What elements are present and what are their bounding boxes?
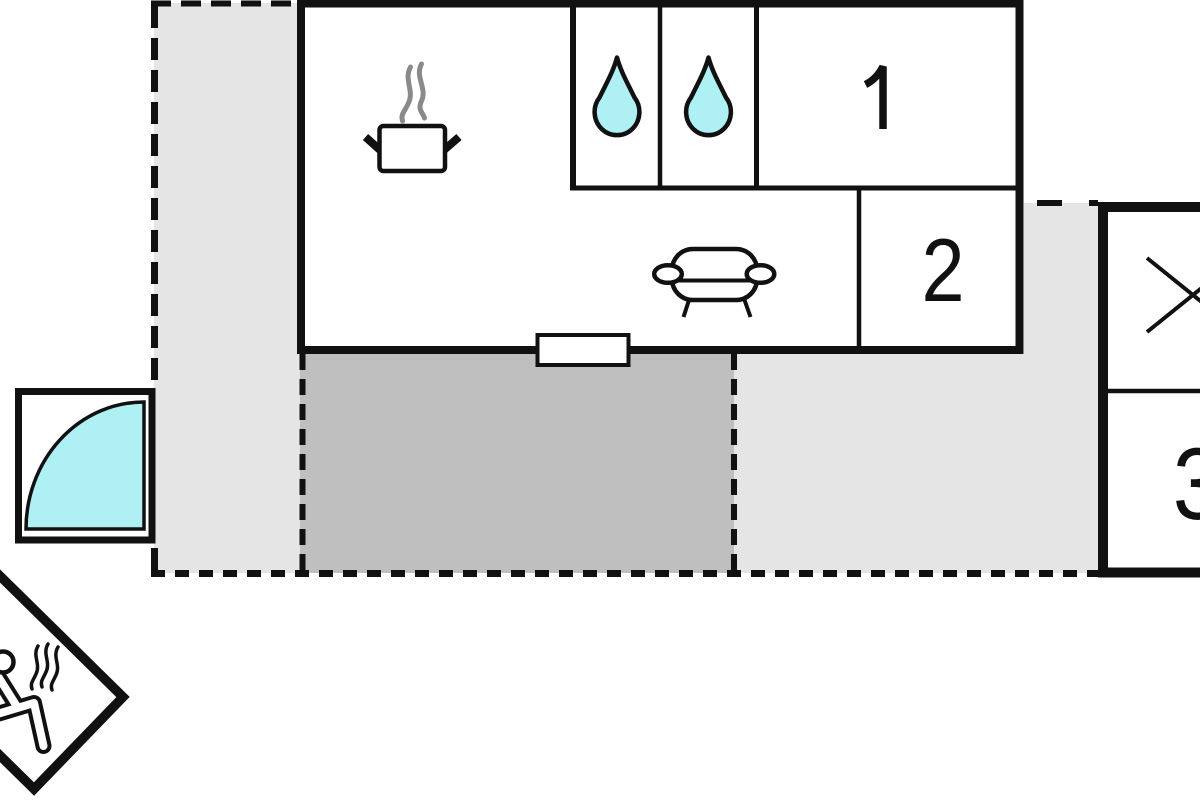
svg-text:2: 2	[921, 220, 964, 320]
svg-text:3: 3	[1173, 427, 1200, 541]
